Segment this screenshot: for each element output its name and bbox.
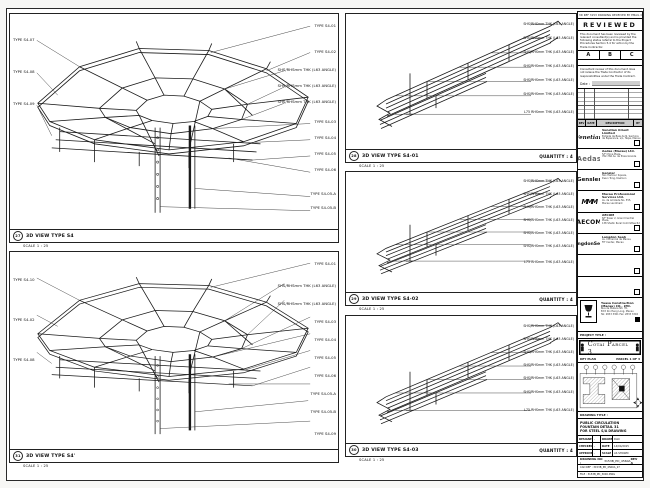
viewport-3d-view-type-s4-03: SHS/RHSmm THK (L63 ANGLE) SHS/RHSmm THK … [345,315,577,462]
sign-off-table: DESIGNED - DRAWN DAO CHECKED - DATE 14/0… [578,436,642,457]
drawing-number-label: DRAWING NO : [580,457,603,465]
file-reference-row: FILE : 3153B_PD_3000.DWG [578,472,642,478]
viewport-3d-view-type-s4-02: SHS/RHSmm THK (L63 ANGLE) SHS/RHSmm THK … [345,171,577,311]
member-label: SHS/RHSmm THK (L63 ANGLE) [523,231,574,235]
viewport-scale: SCALE 1 : 25 [9,243,339,248]
revision-table-divider [584,89,585,119]
reviewed-stamp-title: REVIEWED [578,19,642,31]
keyplan-label: KEY PLAN [580,357,596,361]
check-box [634,246,640,252]
stamp-date-row: Date : [578,79,642,88]
stamp-status-boxes: A B C [578,50,642,60]
contractor-logo [580,300,597,323]
member-label: TYPE S4-02 [13,318,35,322]
check-box [634,289,640,295]
viewport-title: 3D VIEW TYPE S4 [26,234,74,239]
keyplan-map [578,363,642,411]
revision-col-by: BY [634,120,642,126]
quantity-note: QUANTITY : 4 [539,448,573,453]
viewport-scale: SCALE 1 : 25 [345,163,577,168]
revision-table-divider [594,89,595,119]
detail-bubble: 31 [13,451,23,461]
project-title-box: Cotai Parcel 3 [579,340,641,355]
check-box [634,182,640,188]
member-label: TYPE S4-02 [314,50,336,54]
check-box [634,268,640,274]
member-label: TYPE S4-03 [314,120,336,124]
project-title-label-text: PROJECT TITLE : [580,333,606,337]
member-label: SHS/RHSmm THK (L63 ANGLE) [523,64,574,68]
viewport-3d-view-type-s4-01: SHS/RHSmm THK (L63 ANGLE) SHS/RHSmm THK … [345,13,577,168]
revision-col-date: DATE [586,120,597,126]
revision-col-description: DESCRIPTION [597,120,634,126]
viewport-title: 3D VIEW TYPE S4' [26,454,75,459]
langdon-seah-logo: LangdonSeah [578,234,600,254]
check-box [634,161,640,167]
keyplan-graphic [578,363,642,412]
revision-table-header: REV DATE DESCRIPTION BY [578,119,642,127]
gensler-logo: Gensler [578,170,600,190]
quantity-note: QUANTITY : 4 [539,154,573,159]
approved-label: APPROVED [578,450,593,456]
member-label: L75 RHSmm THK (L63 ANGLE) [524,110,574,114]
member-label: SHS/RHSmm THK (L63 ANGLE) [523,324,574,328]
drawing-title-lines: PUBLIC CIRCULATION FOUNTAIN DETAIL 31 FO… [578,419,642,436]
member-label: TYPE S4-04 [314,136,336,140]
cad-reference: CAD REF : 3153B_PD_4560A_27 [580,466,620,469]
ornament-icon [580,343,585,352]
aecom-logo: AECOM [578,213,600,233]
drawing-number: 3153B_PD_4560A [604,459,631,463]
contractor-block: Yuasa Construction (Macau) CO., LTD. Rua… [578,298,642,332]
keyplan-note: PARCEL 1 OF 3 [616,357,640,361]
member-label: SHS/RHSmm THK (L63 ANGLE) [523,244,574,248]
trophy-icon [583,304,594,319]
viewport-scale: SCALE 1 : 25 [9,463,339,468]
member-label: L75 RHSmm THK (L63 ANGLE) [524,408,574,412]
check-box [634,140,640,146]
revision-table-divider [628,89,629,119]
member-label: SHS/RHSmm THK (L63 ANGLE) [523,205,574,209]
member-label: TYPE S4-01 [314,24,336,28]
member-label: SHS/RHSmm THK (L63 ANGLE) [278,84,336,88]
member-label: TYPE S4-09 [13,102,35,106]
keyplan-label-row: KEY PLAN PARCEL 1 OF 3 [578,356,642,363]
member-label: TYPE S4-01 [314,262,336,266]
member-label: SHS/RHSmm THK (L63 ANGLE) [523,363,574,367]
member-label: SHS/RHSmm THK (L63 ANGLE) [523,218,574,222]
stamp-paragraph-2: Consultant review of this document does … [578,66,642,79]
member-label: TYPE S4-05-A [311,192,336,196]
consultant-address: Kwun Tong, Kowloon [602,178,641,181]
ornament-icon [635,343,640,352]
checked-value: - [593,443,601,450]
consultant-row-gensler: Gensler Gensler Two Harbour Square, Kwun… [578,170,642,191]
quantity-note: QUANTITY : 4 [539,297,573,302]
viewport-title-bar: 27 3D VIEW TYPE S4 [10,229,338,242]
viewport-scale: SCALE 1 : 25 [345,457,577,462]
approved-value: - [593,450,601,456]
date-fill-line [592,81,640,86]
member-label: SHS/RHSmm THK (L63 ANGLE) [523,36,574,40]
check-box [634,225,640,231]
drawing-number-row: DRAWING NO : 3153B_PD_4560A REV A [578,457,642,465]
drawn-value: DAO [613,436,642,443]
member-label: TYPE S4-05-B [311,206,336,210]
member-label: SHS/RHSmm THK (L63 ANGLE) [523,376,574,380]
scale-label: SCALE [601,450,613,456]
check-box [634,204,640,210]
drawing-sheet: TYPE S4-01 TYPE S4-02 SHS/RHSmm THK (L63… [6,8,644,481]
stamp-paragraph-1: This document has been reviewed by the r… [578,31,642,50]
revision-table [578,88,642,119]
viewport-title-bar: 29 3D VIEW TYPE S4-02 QUANTITY : 4 [346,292,576,305]
consultant-address: FIT Center, Macau [602,242,641,245]
project-title-label: PROJECT TITLE : [578,332,642,339]
consultant-address: 762-766 Av. da Praia Grande [602,156,641,159]
stamp-mark [635,317,640,322]
consultant-row-aedas: Aedas Aedas (Macau) Ltd. 5/F China Plaza… [578,149,642,170]
viewport-title: 3D VIEW TYPE S4-02 [362,297,419,302]
detail-bubble: 27 [13,231,23,241]
venetian-logo: Venetian [578,127,600,147]
date-label: DATE [601,443,613,450]
designed-value: - [593,436,601,443]
status-box-c: C [621,51,642,59]
mps-logo: MMM [578,191,600,211]
member-label: TYPE S4-05 [314,152,336,156]
member-label: SHS/RHSmm THK (L63 ANGLE) [523,92,574,96]
consultant-row-langdon-seah: LangdonSeah Langdon Seah Av. Comercial d… [578,234,642,255]
file-reference: FILE : 3153B_PD_3000.DWG [580,473,615,476]
member-label: TYPE S4-05-B [311,410,336,414]
viewport-title: 3D VIEW TYPE S4-03 [362,448,419,453]
revision-col-rev: REV [578,120,586,126]
title-block: 3D REF 3153 DRAWING RECEIVED BY EMAIL ON… [577,11,643,478]
member-label: SHS/RHSmm THK (L63 ANGLE) [523,50,574,54]
viewport-title-bar: 31 3D VIEW TYPE S4' [10,449,338,462]
detail-bubble: 29 [349,294,359,304]
umbrella-wireframe-2 [10,252,338,449]
detail-bubble: 30 [349,445,359,455]
member-label: TYPE S4-05-A [311,392,336,396]
drawn-label: DRAWN [601,436,613,443]
member-label: SHS/RHSmm THK (L63 ANGLE) [278,284,336,288]
detail-bubble: 28 [349,151,359,161]
member-label: TYPE S4-05 [314,356,336,360]
contractor-info: Yuasa Construction (Macau) CO., LTD. Rua… [599,300,640,329]
member-label: SHS/RHSmm THK (L63 ANGLE) [523,78,574,82]
viewport-3d-view-type-s4: TYPE S4-01 TYPE S4-02 SHS/RHSmm THK (L63… [9,13,339,248]
member-label: TYPE S4-04 [314,338,336,342]
member-label: SHS/RHSmm THK (L63 ANGLE) [523,179,574,183]
date-label: Date : [580,82,590,86]
status-box-b: B [600,51,622,59]
umbrella-wireframe-1 [10,14,338,229]
member-label: TYPE S4-03 [314,320,336,324]
drawing-title-label-text: DRAWING TITLE : [580,413,608,417]
viewport-3d-view-type-s4-prime: TYPE S4-01 SHS/RHSmm THK (L63 ANGLE) SHS… [9,251,339,468]
member-label: SHS/RHSmm THK (L63 ANGLE) [523,350,574,354]
drawing-title-label: DRAWING TITLE : [578,412,642,419]
member-label: TYPE S4-09 [314,432,336,436]
drawing-title-line: FOR STEEL S/A DRAWING [580,429,640,433]
contractor-address: Tel: 2833 3301 Fax: 2833 3302 [601,314,639,317]
viewport-title: 3D VIEW TYPE S4-01 [362,154,419,159]
member-label: SHS/RHSmm THK (L63 ANGLE) [523,337,574,341]
member-label: TYPE S4-06 [314,168,336,172]
viewport-title-bar: 28 3D VIEW TYPE S4-01 QUANTITY : 4 [346,149,576,162]
member-label: SHS/RHSmm THK (L63 ANGLE) [278,100,336,104]
revision-code: REV A [631,457,640,465]
member-label: TYPE S4-07 [13,38,35,42]
scale-value: AS SHOWN [613,450,642,456]
member-label: TYPE S4-08 [13,358,35,362]
transmittal-note: 3D REF 3153 DRAWING RECEIVED BY EMAIL ON… [578,12,642,19]
consultant-row-mps: MMM Macau Professional Services Ltd. Av.… [578,191,642,212]
designed-label: DESIGNED [578,436,593,443]
status-box-a: A [578,51,600,59]
consultant-row-empty-1 [578,255,642,276]
member-label: SHS/RHSmm THK (L63 ANGLE) [278,302,336,306]
member-label: L75 RHSmm THK (L63 ANGLE) [524,260,574,264]
checked-label: CHECKED [578,443,593,450]
member-label: SHS/RHSmm THK (L63 ANGLE) [278,68,336,72]
member-label: TYPE S4-08 [13,70,35,74]
viewport-title-bar: 30 3D VIEW TYPE S4-03 QUANTITY : 4 [346,443,576,456]
member-label: SHS/RHSmm THK (L63 ANGLE) [523,390,574,394]
member-label: TYPE S4-10 [13,278,35,282]
date-value: 14/04/2015 [613,443,642,450]
consultant-row-empty-2 [578,277,642,298]
aedas-logo: Aedas [578,149,600,169]
viewport-scale: SCALE 1 : 25 [345,306,577,311]
consultant-row-aecom: AECOM AECOM 8/F Tower 2, Grand Central P… [578,213,642,234]
member-label: TYPE S4-06 [314,374,336,378]
member-label: SHS/RHSmm THK (L63 ANGLE) [523,192,574,196]
project-name: Cotai Parcel 3 [588,340,633,356]
member-label: SHS/RHSmm THK (L63 ANGLE) [523,22,574,26]
consultant-row-venetian: Venetian Venetian Orient Limited Estrada… [578,127,642,148]
